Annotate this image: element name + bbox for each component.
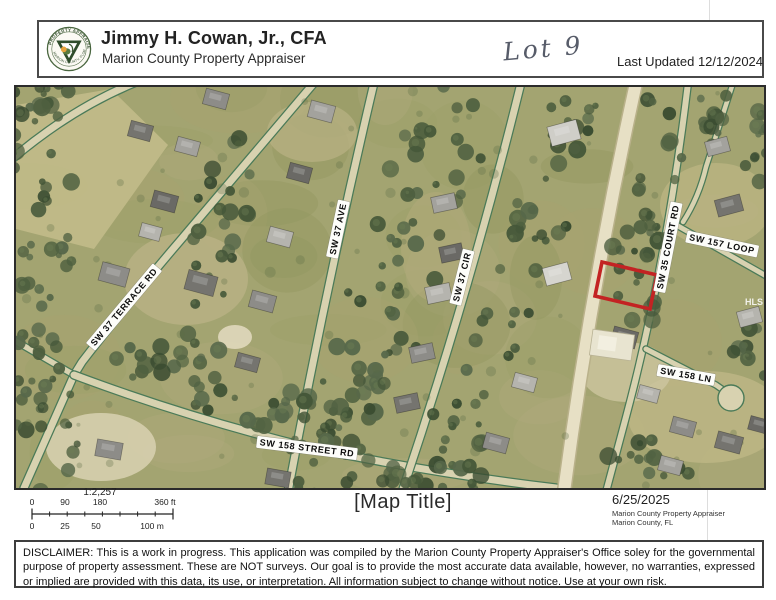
appraiser-name: Jimmy H. Cowan, Jr., CFA: [101, 28, 327, 49]
scale-feet-90: 90: [60, 497, 69, 507]
map-footer: 1:2,257 0 90 180 360 ft 0 25 50 100 m [M…: [14, 486, 762, 540]
aerial-map: HLS SW 37 TERRACE RD SW 37 AVE SW 37 CIR…: [14, 85, 766, 490]
map-title: [Map Title]: [354, 491, 452, 514]
last-updated-text: Last Updated 12/12/2024: [617, 54, 763, 69]
footer-attribution-2: Marion County, FL: [612, 518, 673, 527]
footer-date: 6/25/2025: [612, 492, 670, 507]
seal-icon: PROPERTY APPRAISER MARION COUNTY, FLORID…: [45, 25, 93, 73]
aerial-imagery: HLS: [16, 87, 764, 488]
scan-artifact-line: [709, 0, 710, 20]
header-box: PROPERTY APPRAISER MARION COUNTY, FLORID…: [37, 20, 764, 78]
scale-m-25: 25: [60, 521, 69, 531]
imagery-watermark: HLS: [745, 297, 763, 307]
scale-feet-360: 360 ft: [154, 497, 175, 507]
scale-m-50: 50: [91, 521, 100, 531]
appraiser-office: Marion County Property Appraiser: [102, 51, 305, 66]
county-seal-logo: PROPERTY APPRAISER MARION COUNTY, FLORID…: [45, 25, 93, 78]
scanned-property-map-page: { "header": { "title": "Jimmy H. Cowan, …: [0, 0, 776, 600]
scale-bar-ruler: [14, 507, 184, 521]
footer-attribution-1: Marion County Property Appraiser: [612, 509, 725, 518]
scale-m-0: 0: [30, 521, 35, 531]
scale-m-100: 100 m: [140, 521, 164, 531]
disclaimer-box: DISCLAIMER: This is a work in progress. …: [14, 540, 764, 588]
scale-feet-0: 0: [30, 497, 35, 507]
scale-feet-180: 180: [93, 497, 107, 507]
